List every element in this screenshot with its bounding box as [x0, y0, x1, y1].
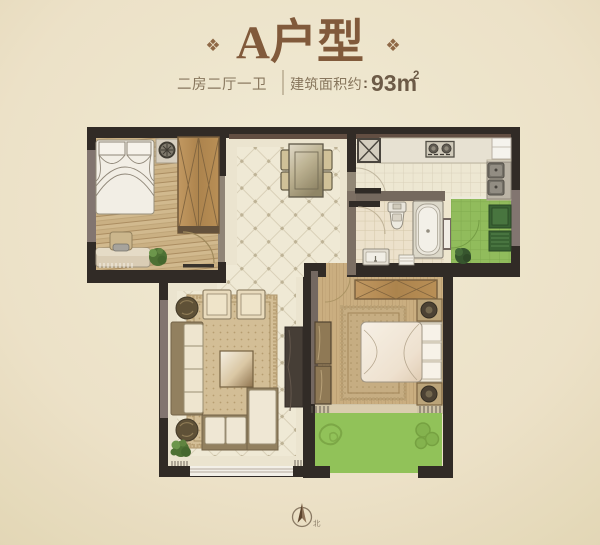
svg-text:北: 北 — [313, 519, 321, 528]
